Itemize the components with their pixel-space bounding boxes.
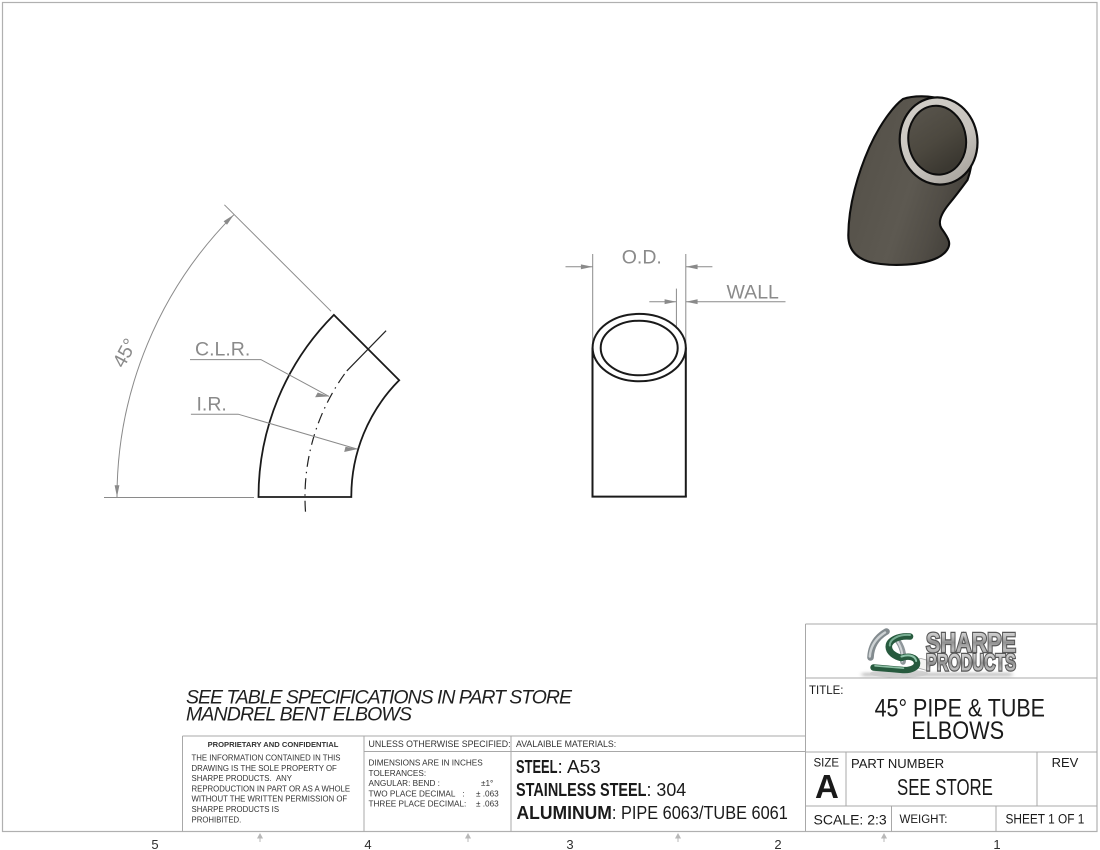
svg-text:4: 4 [364, 837, 371, 850]
svg-text:WEIGHT:: WEIGHT: [900, 814, 948, 826]
svg-text:STAINLESS STEEL: STAINLESS STEEL [516, 780, 647, 800]
svg-text:STEEL: STEEL [516, 757, 558, 777]
svg-text:MANDREL BENT ELBOWS: MANDREL BENT ELBOWS [186, 704, 412, 726]
svg-text:PART NUMBER: PART NUMBER [851, 756, 944, 771]
svg-text:±1°: ±1° [481, 779, 493, 788]
svg-text:3: 3 [566, 837, 573, 850]
svg-text:REPRODUCTION IN PART OR AS A W: REPRODUCTION IN PART OR AS A WHOLE [192, 784, 351, 793]
svg-text:5: 5 [151, 837, 158, 850]
svg-text:SHARPE PRODUCTS IS: SHARPE PRODUCTS IS [192, 805, 280, 814]
svg-text:TOLERANCES:: TOLERANCES: [369, 769, 427, 778]
svg-text:I.R.: I.R. [197, 394, 227, 416]
svg-text:SCALE: 2:3: SCALE: 2:3 [814, 812, 887, 828]
svg-text:PROHIBITED.: PROHIBITED. [192, 815, 242, 824]
svg-text:THREE PLACE DECIMAL:: THREE PLACE DECIMAL: [369, 800, 467, 809]
svg-text:DRAWING IS THE SOLE PROPERTY O: DRAWING IS THE SOLE PROPERTY OF [192, 764, 338, 773]
svg-text:TITLE:: TITLE: [809, 685, 844, 697]
svg-text:AVALAIBLE MATERIALS:: AVALAIBLE MATERIALS: [516, 739, 616, 749]
svg-text:1: 1 [993, 837, 1000, 850]
svg-text:PROPRIETARY AND CONFIDENTIAL: PROPRIETARY AND CONFIDENTIAL [208, 740, 339, 749]
svg-text:: A53: : A53 [558, 757, 601, 777]
svg-text:± .063: ± .063 [476, 789, 499, 798]
svg-text:DIMENSIONS ARE IN INCHES: DIMENSIONS ARE IN INCHES [369, 759, 484, 768]
svg-text:ELBOWS: ELBOWS [911, 717, 1004, 745]
svg-text:ALUMINUM: ALUMINUM [517, 803, 612, 823]
svg-text:45°: 45° [109, 335, 142, 371]
svg-text:A: A [815, 768, 839, 805]
svg-text:UNLESS OTHERWISE SPECIFIED:: UNLESS OTHERWISE SPECIFIED: [369, 739, 511, 749]
svg-text:O.D.: O.D. [622, 247, 662, 269]
svg-text:WITHOUT THE WRITTEN PERMISSION: WITHOUT THE WRITTEN PERMISSION OF [192, 795, 348, 804]
svg-text:SEE STORE: SEE STORE [897, 774, 993, 800]
svg-text:REV: REV [1052, 755, 1079, 770]
svg-text:PRODUCTS: PRODUCTS [926, 650, 1016, 677]
svg-text:WALL: WALL [727, 282, 780, 304]
svg-text:2: 2 [774, 837, 781, 850]
svg-text:THE INFORMATION CONTAINED IN T: THE INFORMATION CONTAINED IN THIS [192, 754, 341, 763]
svg-text:: PIPE 6063/TUBE 6061: : PIPE 6063/TUBE 6061 [612, 803, 788, 823]
svg-text:TWO PLACE DECIMAL :: TWO PLACE DECIMAL : [369, 789, 465, 798]
svg-text:SHARPE PRODUCTS. ANY: SHARPE PRODUCTS. ANY [192, 774, 293, 783]
svg-text:ANGULAR: BEND :: ANGULAR: BEND : [369, 779, 440, 788]
svg-text:: 304: : 304 [647, 780, 687, 800]
svg-text:± .063: ± .063 [476, 800, 499, 809]
svg-text:SHEET 1 OF 1: SHEET 1 OF 1 [1006, 812, 1085, 827]
svg-text:C.L.R.: C.L.R. [195, 339, 250, 361]
